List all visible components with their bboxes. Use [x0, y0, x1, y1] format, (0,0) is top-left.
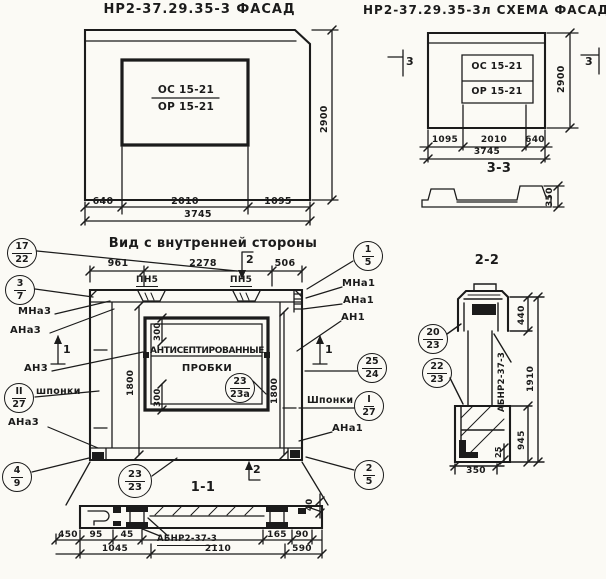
callout-top: 3 [14, 279, 27, 291]
inner-dim-961: 961 [103, 259, 133, 269]
facade-dim-640: 640 [88, 197, 118, 207]
facade-window-mark-top: ОС 15-21 [154, 85, 218, 96]
pn5-label-left: ПН5 [136, 276, 158, 287]
dim-2110: 2110 [202, 545, 234, 554]
callout-top: 4 [11, 466, 24, 478]
callout-top: 1 [362, 245, 375, 257]
callout-top: I [364, 395, 374, 407]
facade-dim-3745: 3745 [178, 210, 218, 220]
window-dim-300-top: 300 [154, 322, 163, 341]
callout-bottom: 23 [128, 482, 142, 493]
callout-23-23a: 23 23а [225, 373, 255, 403]
schema-dim-2010: 2010 [477, 136, 511, 145]
dim-450: 450 [55, 531, 81, 540]
dim-25: 25 [495, 446, 503, 458]
dim-590: 590 [288, 545, 316, 554]
schema-section-mark-left: 3 [406, 56, 414, 67]
schema-window-mark-bottom: ОР 15-21 [464, 87, 530, 97]
label-ana1-bottom: АНа1 [332, 424, 363, 434]
callout-II-27: II 27 [4, 383, 34, 413]
facade-dim-1095: 1095 [258, 197, 298, 207]
callout-top: 22 [427, 362, 446, 374]
label-ana3-top: АНа3 [10, 326, 41, 336]
callout-23-23: 23 23 [118, 464, 152, 498]
dim-440: 440 [518, 305, 527, 325]
callout-bottom: 27 [362, 407, 375, 418]
section-1-mark-left: 1 [63, 344, 71, 355]
label-shponki-right: Шпонки [307, 396, 353, 406]
schema-window-mark-top: ОС 15-21 [464, 62, 530, 72]
facade-dim-2010: 2010 [165, 197, 205, 207]
callout-bottom: 5 [366, 476, 373, 487]
facade-window-mark-bottom: ОР 15-21 [154, 102, 218, 113]
window-dim-300-bottom: 300 [154, 388, 163, 407]
dim-945: 945 [518, 430, 527, 450]
dim-1045: 1045 [100, 545, 130, 554]
facade-dim-2900: 2900 [320, 105, 330, 133]
callout-bottom: 24 [365, 369, 378, 380]
schema-dim-3745: 3745 [470, 148, 504, 157]
label-ana1-top: АНа1 [343, 296, 374, 306]
callout-bottom: 27 [12, 399, 25, 410]
schema-title: НР2-37.29.35-3л СХЕМА ФАСАДА [363, 4, 606, 16]
section-22-part-mark: АБНР2-37-3 [498, 352, 507, 412]
label-mna3: МНа3 [18, 307, 51, 317]
label-an3: АН3 [24, 364, 48, 374]
callout-3-7: 3 7 [5, 275, 35, 305]
section-33-label: 3-3 [482, 162, 516, 175]
label-shponki-left: шпонки [36, 387, 81, 397]
facade-title: НР2-37.29.35-3 ФАСАД [72, 3, 327, 16]
dim-45: 45 [116, 531, 138, 540]
callout-top: 23 [230, 377, 249, 389]
dim-90: 90 [291, 531, 313, 540]
schema-dim-1095: 1095 [428, 136, 462, 145]
callout-top: 2 [363, 464, 376, 476]
section-11-label: 1-1 [186, 481, 220, 494]
section-2-mark-bottom: 2 [253, 464, 261, 475]
callout-bottom: 9 [14, 478, 21, 489]
inner-dim-1800-right: 1800 [271, 378, 280, 404]
callout-4-9: 4 9 [2, 462, 32, 492]
callout-top: II [12, 387, 25, 399]
callout-bottom: 7 [17, 291, 24, 302]
schema-section-mark-right: 3 [585, 56, 593, 67]
dim-350: 350 [462, 467, 490, 476]
callout-top: 20 [423, 328, 442, 340]
blueprint-sheet: НР2-37.29.35-3 ФАСАД НР2-37.29.35-3л СХЕ… [0, 0, 606, 579]
label-an1: АН1 [341, 313, 365, 323]
section-2-mark-top: 2 [246, 254, 254, 265]
dim-40: 40 [306, 499, 315, 511]
callout-1-5: 1 5 [353, 241, 383, 271]
callout-bottom: 22 [15, 254, 28, 265]
callout-2-5: 2 5 [354, 460, 384, 490]
callout-17-22: 17 22 [7, 238, 37, 268]
callout-20-23: 20 23 [418, 324, 448, 354]
label-mna1: МНа1 [342, 279, 375, 289]
section-22-label: 2-2 [470, 254, 504, 267]
window-note-line1: АНТИСЕПТИРОВАННЫЕ [147, 347, 267, 356]
callout-top: 23 [125, 470, 145, 482]
inner-dim-506: 506 [270, 259, 300, 269]
callout-bottom: 23 [430, 374, 443, 385]
schema-dim-640: 640 [521, 136, 549, 145]
label-ana3-bottom: АНа3 [8, 418, 39, 428]
callout-22-23: 22 23 [422, 358, 452, 388]
callout-top: 25 [362, 357, 381, 369]
schema-dim-2900: 2900 [557, 65, 567, 93]
callout-bottom: 23 [426, 340, 439, 351]
callout-25-24: 25 24 [357, 353, 387, 383]
section-33-dim-350: 350 [546, 187, 555, 207]
pn5-label-right: ПН5 [230, 276, 252, 287]
callout-top: 17 [12, 242, 31, 254]
inner-dim-1800-left: 1800 [127, 370, 136, 396]
section-1-mark-right: 1 [325, 344, 333, 355]
dim-1910: 1910 [527, 366, 536, 392]
callout-I-27: I 27 [354, 391, 384, 421]
inner-dim-2278: 2278 [183, 259, 223, 269]
callout-bottom: 23а [230, 389, 250, 400]
dim-95: 95 [85, 531, 107, 540]
callout-bottom: 5 [365, 257, 372, 268]
window-note-line2: ПРОБКИ [147, 364, 267, 374]
dim-165: 165 [264, 531, 290, 540]
inner-view-title: Вид с внутренней стороны [108, 237, 318, 250]
